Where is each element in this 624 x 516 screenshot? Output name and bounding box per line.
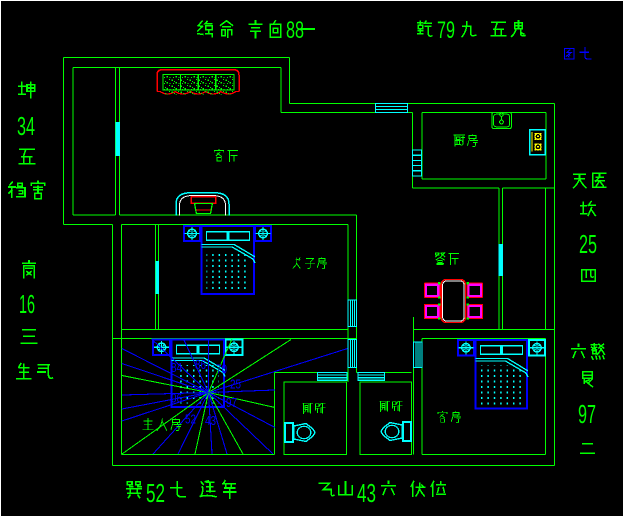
svg-text:06: 06: [171, 391, 182, 406]
svg-text:97: 97: [578, 399, 596, 429]
svg-text:86: 86: [195, 357, 206, 372]
svg-text:25: 25: [579, 229, 597, 259]
svg-text:70: 70: [216, 362, 227, 377]
svg-text:25: 25: [230, 377, 241, 392]
svg-text:16: 16: [19, 289, 35, 319]
svg-text:34: 34: [17, 111, 35, 141]
svg-text:43: 43: [205, 413, 216, 428]
svg-text:79: 79: [437, 17, 455, 44]
svg-text:88: 88: [286, 17, 304, 44]
svg-text:52: 52: [185, 412, 196, 427]
svg-text:97: 97: [226, 395, 237, 410]
svg-text:43: 43: [357, 478, 376, 508]
svg-text:52: 52: [146, 478, 165, 508]
svg-text:84: 84: [171, 360, 182, 375]
